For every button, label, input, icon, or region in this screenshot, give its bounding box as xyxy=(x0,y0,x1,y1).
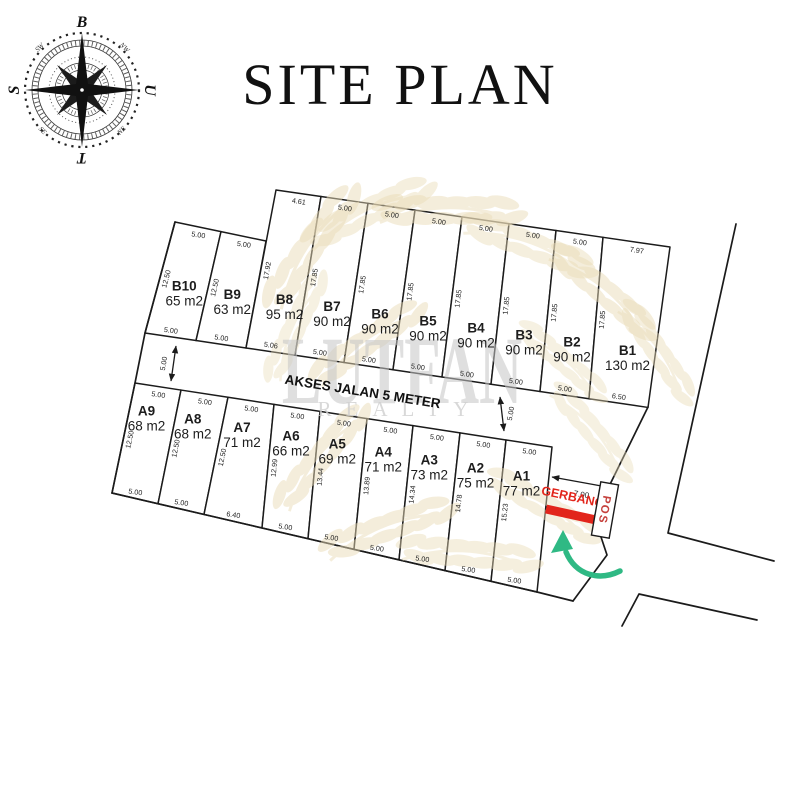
lot-B6-name: B6 xyxy=(371,306,389,321)
entrance-area: 7.00 GERBANG POS xyxy=(540,477,620,576)
lot-A4-name: A4 xyxy=(375,445,393,460)
lot-B1-area: 130 m2 xyxy=(605,358,650,373)
guard-post: POS xyxy=(591,482,618,538)
lot-A5-name: A5 xyxy=(329,437,347,452)
lot-B7-area: 90 m2 xyxy=(313,314,351,329)
lot-B9-area: 63 m2 xyxy=(213,302,251,317)
lot-A3-area: 73 m2 xyxy=(410,468,448,483)
lot-A3-name: A3 xyxy=(421,453,439,468)
lot-A9-name: A9 xyxy=(138,404,155,419)
road-width-dim-left: 5.00 xyxy=(158,356,169,371)
site-plan-image: SITE PLAN B U T S SW NW SE NE LUTFAN REA… xyxy=(0,0,804,804)
lot-A8-name: A8 xyxy=(184,412,202,427)
compass-label-b: B xyxy=(76,14,88,31)
lot-B10-name: B10 xyxy=(172,279,197,294)
lot-A8-area: 68 m2 xyxy=(174,427,212,442)
lot-A5-area: 69 m2 xyxy=(318,452,356,467)
lot-B8-name: B8 xyxy=(276,292,294,307)
lot-B5-name: B5 xyxy=(419,313,437,328)
compass-label-sw: SW xyxy=(33,41,46,54)
lot-A1-side-dim: 15.23 xyxy=(499,503,510,522)
lot-B1-name: B1 xyxy=(619,343,637,358)
lot-A1-name: A1 xyxy=(513,469,531,484)
lot-A6-side-dim: 12.99 xyxy=(269,459,280,478)
compass-label-t: T xyxy=(76,149,87,166)
lot-B2-area: 90 m2 xyxy=(553,350,591,365)
lot-B3-name: B3 xyxy=(515,328,533,343)
lot-B7-name: B7 xyxy=(323,299,340,314)
page-title: SITE PLAN xyxy=(242,52,557,117)
lot-B8-area: 95 m2 xyxy=(266,307,304,322)
road-width-arrow-left xyxy=(171,346,176,381)
lot-B4-area: 90 m2 xyxy=(457,336,495,351)
lot-B4-name: B4 xyxy=(467,321,485,336)
lot-B9-name: B9 xyxy=(224,287,241,302)
entry-direction-arrow xyxy=(566,552,620,576)
lot-A1-area: 77 m2 xyxy=(503,484,541,499)
lot-A7-name: A7 xyxy=(233,420,250,435)
compass-label-s: S xyxy=(6,85,23,94)
lot-B2-side-dim: 17.85 xyxy=(549,303,560,322)
road-line-southeast xyxy=(622,594,757,626)
lot-B6-area: 90 m2 xyxy=(361,321,399,336)
lot-B1-side-dim: 17.85 xyxy=(597,310,608,329)
compass-label-u: U xyxy=(141,84,158,97)
lot-A5-side-dim: 13.44 xyxy=(315,467,326,486)
lot-A2-area: 75 m2 xyxy=(457,476,495,491)
lot-A6-area: 66 m2 xyxy=(272,443,310,458)
lot-A3-side-dim: 14.34 xyxy=(407,485,418,504)
lot-B10-area: 65 m2 xyxy=(165,294,203,309)
entrance-width-arrow xyxy=(552,477,607,487)
lot-A4-side-dim: 13.89 xyxy=(361,476,372,495)
lot-A4-area: 71 m2 xyxy=(364,460,402,475)
road-line-east xyxy=(668,224,774,561)
compass-label-nw: NW xyxy=(117,40,132,55)
lot-B2-name: B2 xyxy=(563,335,580,350)
lot-B5-area: 90 m2 xyxy=(409,328,447,343)
lot-A2-name: A2 xyxy=(467,461,484,476)
lot-A6-name: A6 xyxy=(282,428,300,443)
lot-B3-area: 90 m2 xyxy=(505,343,543,358)
compass-rose: B U T S SW NW SE NE xyxy=(6,14,158,166)
lot-A7-area: 71 m2 xyxy=(223,435,261,450)
